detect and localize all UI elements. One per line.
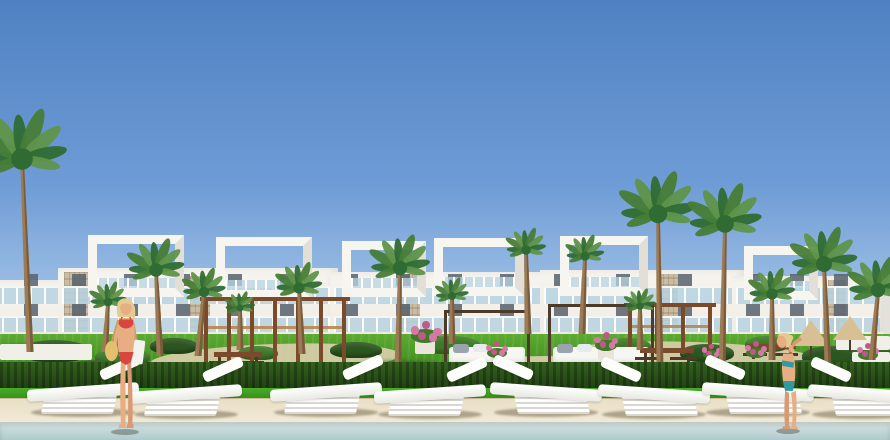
woman-red-bikini	[97, 294, 155, 436]
people	[0, 0, 890, 440]
woman-teal-bikini	[766, 330, 816, 436]
woman-red-bikini-figure	[97, 294, 155, 436]
woman-teal-bikini-figure	[766, 330, 816, 436]
poolside-residential-render: Architectural rendering of a white moder…	[0, 0, 890, 440]
